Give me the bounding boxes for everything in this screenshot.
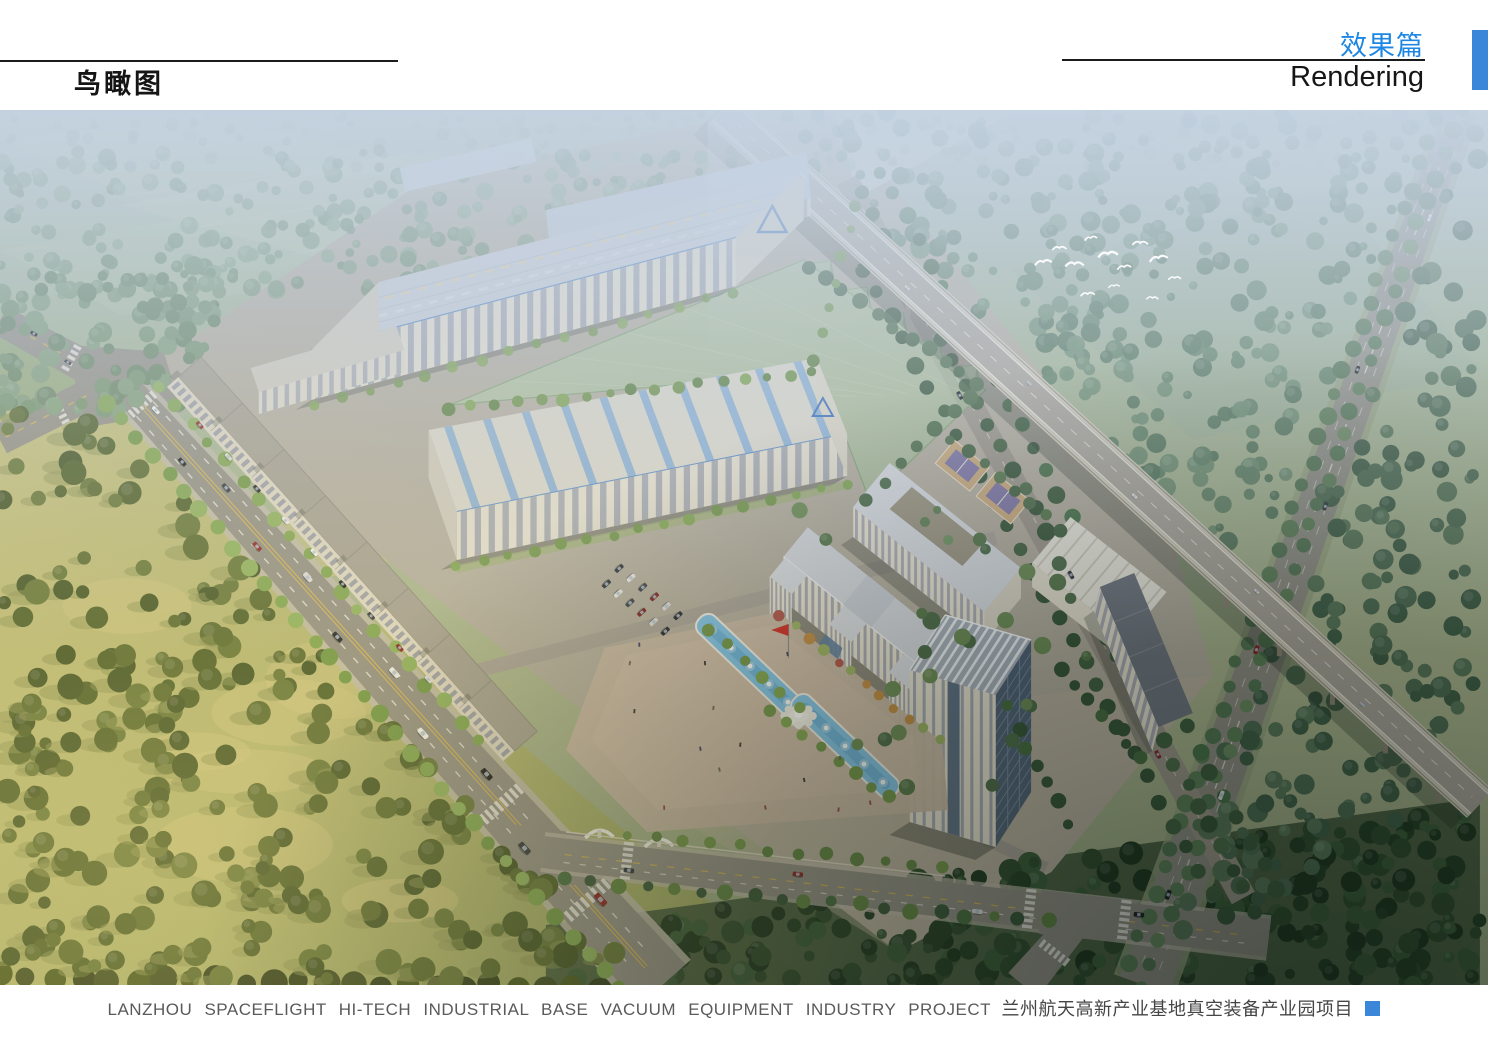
footer-caption: LANZHOU SPACEFLIGHT HI-TECH INDUSTRIAL B…: [0, 995, 1488, 1021]
page-title: 鸟瞰图: [74, 62, 164, 101]
header-rule-left: [0, 60, 398, 62]
aerial-rendering-scene: [0, 110, 1488, 985]
atmosphere: [0, 110, 1488, 985]
section-title-en: Rendering: [1290, 61, 1424, 94]
header-accent-block: [1472, 30, 1488, 90]
footer-caption-en: LANZHOU SPACEFLIGHT HI-TECH INDUSTRIAL B…: [108, 1000, 992, 1019]
section-title-zh: 效果篇: [1340, 24, 1424, 63]
presentation-page: 鸟瞰图 效果篇 Rendering LANZHOU SPACEFLIGHT HI…: [0, 0, 1488, 1052]
footer-caption-zh: 兰州航天高新产业基地真空装备产业园项目: [1002, 999, 1354, 1019]
footer-accent-square: [1365, 1001, 1380, 1016]
aerial-rendering-image: [0, 110, 1488, 985]
